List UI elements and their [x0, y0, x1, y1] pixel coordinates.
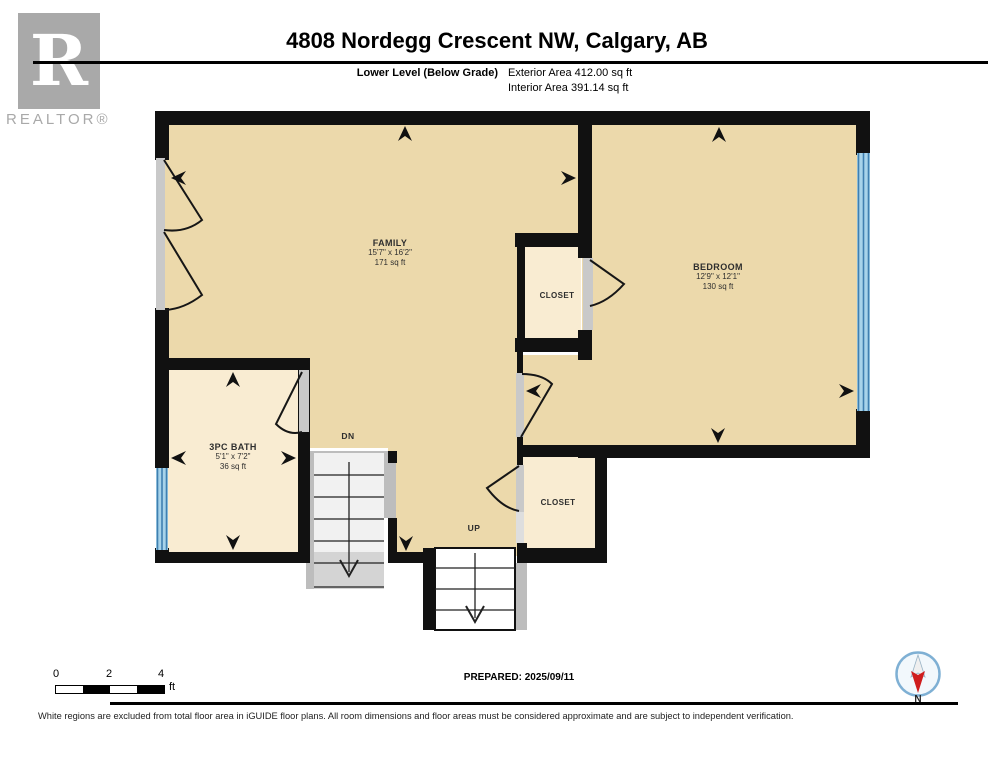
room-label-bath: 3PC BATH 5'1" x 7'2" 36 sq ft [209, 442, 257, 472]
stairs-down-label: DN [341, 431, 354, 441]
disclaimer-text: White regions are excluded from total fl… [38, 711, 968, 721]
footer-divider [110, 702, 958, 705]
room-label-closet-upper: CLOSET [540, 291, 575, 300]
scale-tick-0: 0 [53, 668, 59, 680]
compass-rose [897, 653, 940, 696]
compass-north-label: N [914, 694, 921, 705]
scale-unit: ft [169, 681, 175, 693]
room-label-family: FAMILY 15'7" x 16'2" 171 sq ft [368, 238, 412, 268]
scale-tick-4: 4 [158, 668, 164, 680]
prepared-date: PREPARED: 2025/09/11 [464, 672, 574, 683]
stairs-up-label: UP [468, 523, 481, 533]
floor-plan-drawing [0, 0, 994, 768]
scale-tick-2: 2 [106, 668, 112, 680]
room-label-closet-lower: CLOSET [541, 498, 576, 507]
stairs-down [306, 451, 396, 589]
bedroom-window [857, 153, 870, 411]
floor-plan-page: R REALTOR® 4808 Nordegg Crescent NW, Cal… [0, 0, 994, 768]
room-label-bedroom: BEDROOM 12'9" x 12'1" 130 sq ft [693, 262, 743, 292]
bath-window [156, 468, 168, 550]
stairs-up [435, 548, 527, 630]
scale-bar [55, 685, 165, 694]
floor-fills [160, 115, 864, 558]
